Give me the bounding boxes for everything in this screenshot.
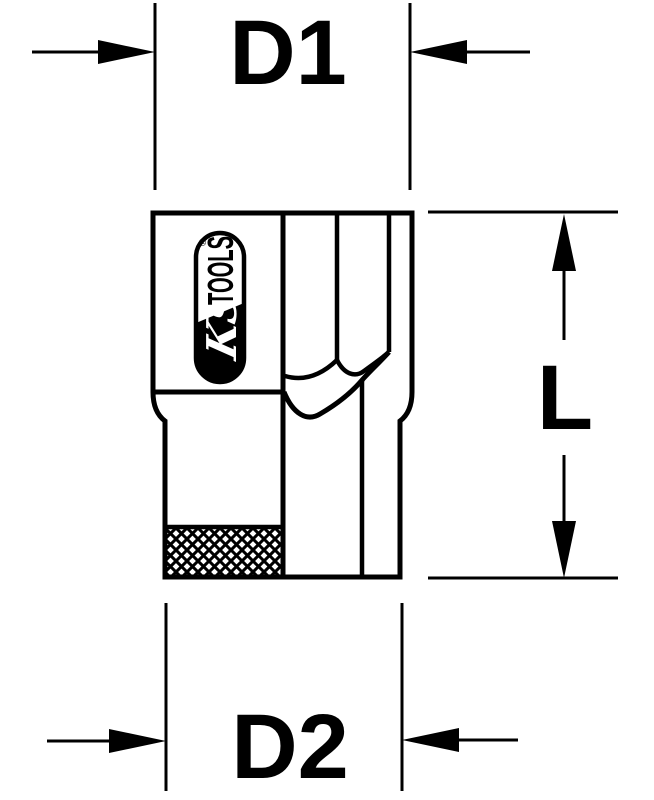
dimension-label-d2: D2 [231, 701, 349, 793]
ks-tools-logo: KS TOOLS ® [193, 230, 247, 385]
logo-text-tools: TOOLS [201, 236, 242, 305]
dimension-label-l: L [537, 352, 593, 444]
l-arrowhead-up-icon [552, 214, 576, 271]
registered-mark: ® [198, 238, 209, 246]
dimension-label-d1: D1 [229, 7, 347, 99]
d2-arrowhead-right-icon [402, 728, 459, 752]
d1-arrowhead-right-icon [410, 40, 467, 64]
technical-drawing-canvas: KS TOOLS ® D1 L D2 [0, 0, 654, 800]
crosshatch-knurl [166, 529, 281, 575]
d2-arrowhead-left-icon [109, 729, 166, 753]
d1-arrowhead-left-icon [98, 40, 155, 64]
socket-body [153, 213, 412, 577]
l-arrowhead-down-icon [552, 521, 576, 578]
